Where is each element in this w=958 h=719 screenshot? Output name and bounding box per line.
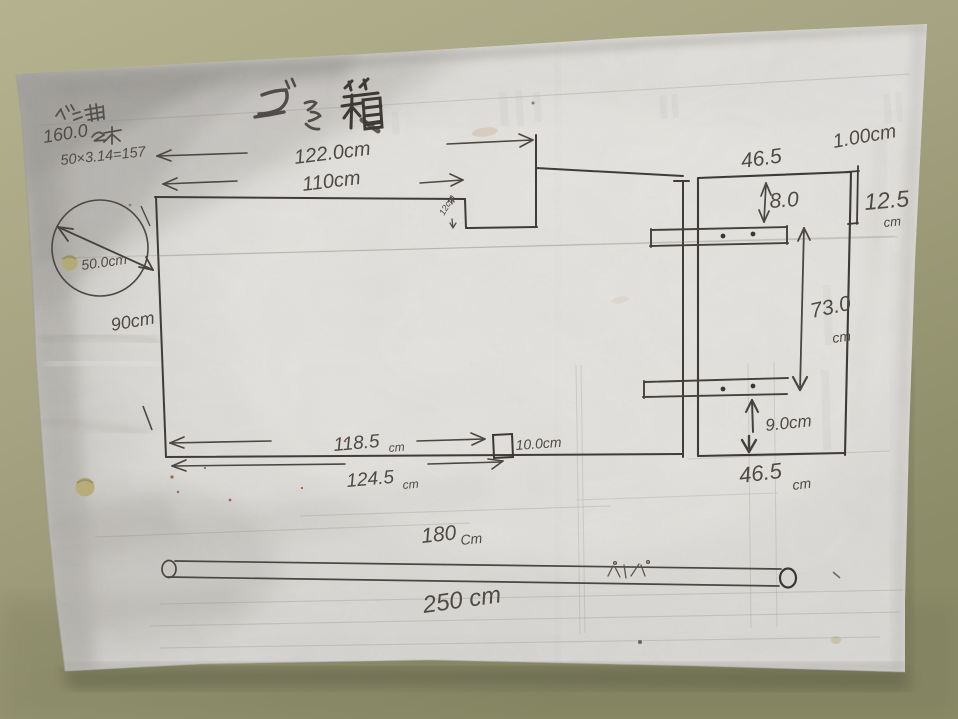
svg-text:cm: cm [883,214,902,230]
svg-text:180: 180 [420,521,458,548]
svg-text:cm: cm [402,477,419,492]
svg-text:Cm: Cm [460,530,484,548]
svg-text:cm: cm [791,475,812,493]
svg-text:10.0cm: 10.0cm [515,434,562,453]
svg-text:124.5: 124.5 [346,467,396,492]
svg-text:12.5: 12.5 [863,185,910,215]
svg-text:118.5: 118.5 [333,431,381,456]
svg-text:8.0: 8.0 [769,188,800,213]
svg-text:cm: cm [388,440,405,455]
svg-text:cm: cm [831,327,852,345]
svg-text:46.5: 46.5 [738,458,784,488]
